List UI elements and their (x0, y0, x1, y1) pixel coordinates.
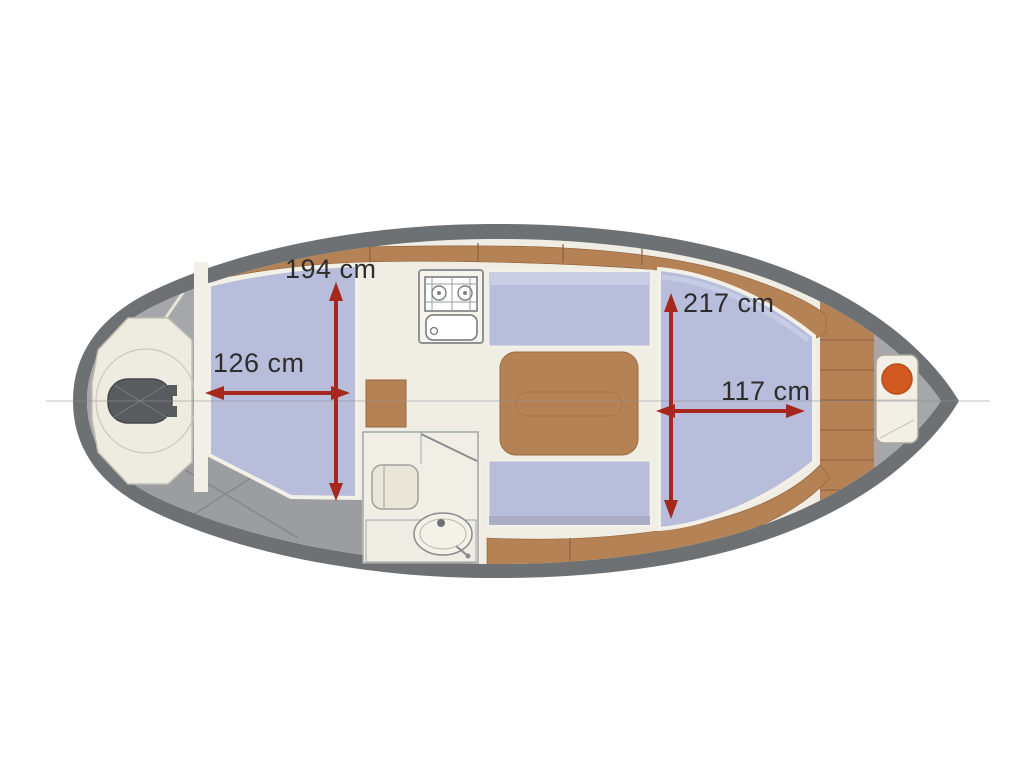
galley-sink-icon (426, 315, 477, 340)
anchor-locker (876, 355, 918, 443)
galley-unit (419, 270, 483, 343)
dimension-label-cockpit-length: 126 cm (213, 349, 305, 377)
dimension-label-bow-cabin-length: 117 cm (721, 377, 811, 405)
galley-cabinet (366, 380, 406, 427)
saloon-seat-bottom (488, 460, 651, 526)
bathroom-compartment (363, 432, 478, 563)
dimension-label-bow-cabin-beam: 217 cm (683, 289, 775, 317)
stern-bulkhead (194, 262, 208, 492)
boat-floorplan-canvas: 194 cm 126 cm 217 cm 117 cm (0, 0, 1024, 768)
boat-floorplan-drawing (0, 0, 1024, 768)
saloon-table (500, 352, 638, 455)
stove-icon (425, 277, 477, 311)
toilet-icon (372, 465, 418, 509)
bow-fitting-icon (882, 364, 912, 394)
dimension-label-cockpit-beam: 194 cm (285, 255, 377, 283)
saloon-seat-top (488, 271, 651, 347)
